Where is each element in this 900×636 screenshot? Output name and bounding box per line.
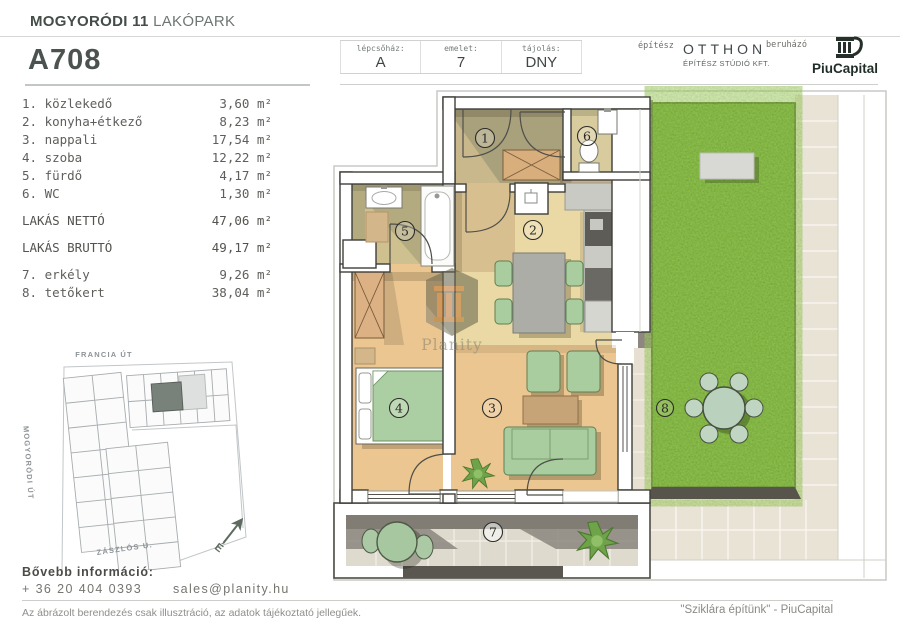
room-name: 1. közlekedő [22, 96, 112, 111]
project-name-bold: MOGYORÓDI 11 [30, 13, 149, 30]
architect-label: építész [638, 41, 674, 51]
room-area: 8,23 m² [219, 114, 272, 129]
dining-table [513, 253, 565, 333]
table-underline [340, 84, 878, 85]
room-row: 5. fürdő 4,17 m² [22, 168, 272, 183]
room-label-4: 4 [395, 401, 403, 416]
info-cell-staircase: lépcsőház: A [340, 41, 420, 73]
room-area: 17,54 m² [212, 132, 272, 147]
balcony-railing [403, 566, 563, 578]
floor-label: emelet: [421, 44, 500, 53]
room-label-5: 5 [401, 224, 409, 239]
room-row: 3. nappali 17,54 m² [22, 132, 272, 147]
building-wing-top [127, 369, 230, 428]
floor-value: 7 [421, 54, 500, 71]
info-cell-floor: emelet: 7 [420, 41, 500, 73]
room-row: 8. tetőkert 38,04 m² [22, 285, 272, 300]
room-label-8: 8 [661, 401, 669, 416]
gross-total-row: LAKÁS BRUTTÓ 49,17 m² [22, 240, 272, 255]
unit-underline [25, 84, 310, 86]
gross-total-label: LAKÁS BRUTTÓ [22, 240, 112, 255]
header-divider [0, 36, 900, 37]
developer-label: beruházó [766, 40, 807, 50]
developer-name: PiuCapital [812, 61, 878, 76]
net-total-row: LAKÁS NETTÓ 47,06 m² [22, 213, 272, 228]
footer-info-title: Bővebb információ: [22, 565, 154, 579]
staircase-label: lépcsőház: [341, 44, 420, 53]
staircase-value: A [341, 54, 420, 71]
page-title: MOGYORÓDI 11 LAKÓPARK [30, 13, 235, 30]
room-name: 4. szoba [22, 150, 82, 165]
footer-contact: + 36 20 404 0393 sales@planity.hu [22, 582, 316, 596]
room-list: 1. közlekedő 3,60 m² 2. konyha+étkező 8,… [22, 96, 272, 303]
room-label-3: 3 [488, 401, 496, 416]
orientation-label: tájolás: [502, 44, 581, 53]
unit-info-table: lépcsőház: A emelet: 7 tájolás: DNY [340, 40, 582, 74]
project-name-light: LAKÓPARK [153, 13, 235, 30]
room-name: 8. tetőkert [22, 285, 105, 300]
room-row: 1. közlekedő 3,60 m² [22, 96, 272, 111]
room-row: 2. konyha+étkező 8,23 m² [22, 114, 272, 129]
armchair [527, 351, 560, 392]
room-name: 2. konyha+étkező [22, 114, 142, 129]
bathroom-cabinet [366, 212, 388, 242]
net-total-area: 47,06 m² [212, 213, 272, 228]
roof-garden [626, 95, 886, 578]
info-cell-orientation: tájolás: DNY [501, 41, 582, 73]
hall-wardrobe [503, 150, 560, 180]
architect-name: OTTHON [683, 41, 766, 57]
fridge [585, 301, 612, 332]
floorplan: 1 2 3 4 5 6 7 8 Planity [330, 86, 900, 596]
room-label-2: 2 [529, 223, 537, 238]
garden-skylight [700, 153, 754, 179]
gross-total-area: 49,17 m² [212, 240, 272, 255]
email-address: sales@planity.hu [173, 582, 290, 596]
armchair [567, 351, 600, 392]
room-label-7: 7 [489, 525, 497, 540]
room-label-6: 6 [583, 129, 591, 144]
room-area: 9,26 m² [219, 267, 272, 282]
disclaimer-text: Az ábrázolt berendezés csak illusztráció… [22, 607, 361, 619]
footer-divider [22, 600, 833, 601]
room-row: 6. WC 1,30 m² [22, 186, 272, 201]
highlighted-unit [151, 382, 183, 412]
room-row: 7. erkély 9,26 m² [22, 267, 272, 282]
room-name: 7. erkély [22, 267, 90, 282]
room-area: 38,04 m² [212, 285, 272, 300]
room-row: 4. szoba 12,22 m² [22, 150, 272, 165]
wall-niche [343, 240, 376, 268]
room-area: 3,60 m² [219, 96, 272, 111]
room-name: 6. WC [22, 186, 60, 201]
stove [585, 268, 612, 301]
room-area: 12,22 m² [212, 150, 272, 165]
unit-id: A708 [28, 44, 101, 77]
coffee-table [523, 396, 578, 424]
planity-watermark: Planity [421, 268, 483, 354]
watermark-text: Planity [421, 336, 483, 354]
room-name: 5. fürdő [22, 168, 82, 183]
room-area: 4,17 m² [219, 168, 272, 183]
outdoor-rooms: 7. erkély 9,26 m² 8. tetőkert 38,04 m² [22, 267, 272, 300]
street-top-label: FRANCIA ÚT [75, 350, 133, 359]
room-name: 3. nappali [22, 132, 97, 147]
balcony-windows [368, 491, 618, 502]
nightstand [355, 348, 375, 364]
architect-subtitle: ÉPÍTÉSZ STÚDIÓ KFT. [683, 59, 770, 68]
room-area: 1,30 m² [219, 186, 272, 201]
phone-number: + 36 20 404 0393 [22, 582, 142, 596]
room-label-1: 1 [481, 131, 489, 146]
company-slogan: "Sziklára építünk" - PiuCapital [500, 604, 833, 616]
north-compass-icon: É [211, 514, 248, 557]
orientation-value: DNY [502, 54, 581, 71]
site-map: FRANCIA ÚT MOGYORÓDI ÚT ZÁSZLÓS U. É [10, 342, 270, 570]
street-left-label: MOGYORÓDI ÚT [21, 426, 35, 500]
shaft-box [515, 183, 548, 214]
net-total-label: LAKÁS NETTÓ [22, 213, 105, 228]
wc-sink [598, 110, 617, 134]
